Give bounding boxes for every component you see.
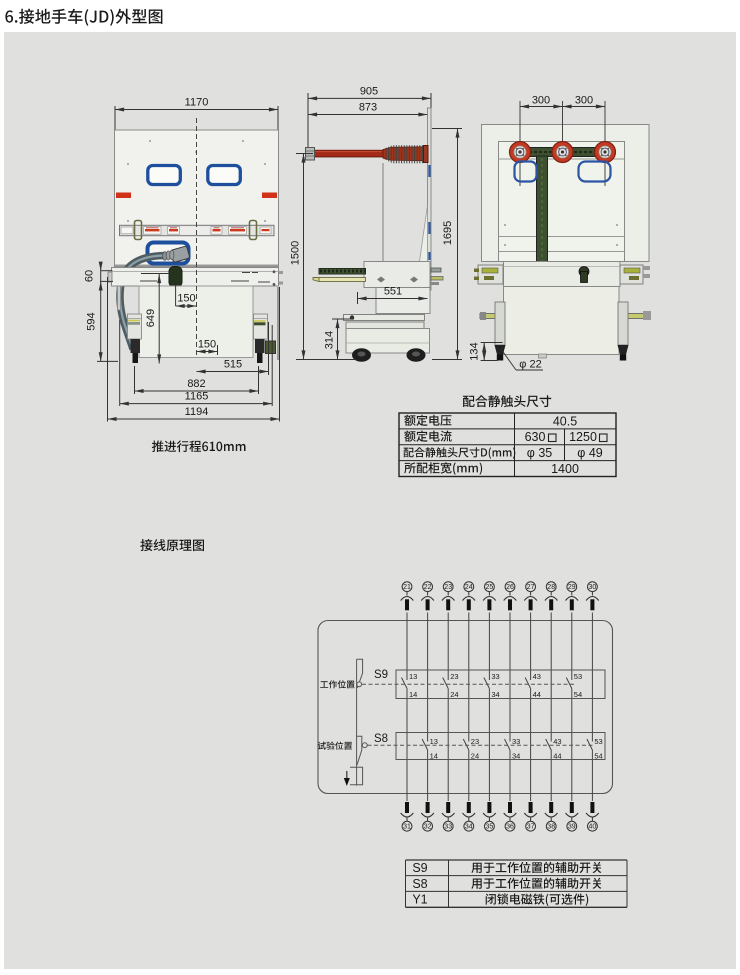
svg-text:13: 13 xyxy=(409,672,417,681)
svg-text:515: 515 xyxy=(224,359,242,371)
svg-text:53: 53 xyxy=(594,737,602,746)
svg-text:30: 30 xyxy=(589,584,597,591)
svg-text:1400: 1400 xyxy=(551,462,579,476)
svg-text:150: 150 xyxy=(177,293,195,305)
svg-text:33: 33 xyxy=(444,824,452,831)
svg-text:S9: S9 xyxy=(412,861,427,875)
svg-text:27: 27 xyxy=(527,584,535,591)
svg-text:882: 882 xyxy=(187,378,205,390)
svg-text:34: 34 xyxy=(491,690,499,699)
svg-text:44: 44 xyxy=(533,690,541,699)
svg-text:594: 594 xyxy=(86,312,98,330)
svg-text:S9: S9 xyxy=(374,669,388,681)
svg-text:150: 150 xyxy=(198,339,216,351)
svg-text:23: 23 xyxy=(450,672,458,681)
svg-text:14: 14 xyxy=(430,752,438,761)
svg-text:873: 873 xyxy=(359,102,377,114)
svg-text:26: 26 xyxy=(506,584,514,591)
svg-text:33: 33 xyxy=(491,672,499,681)
svg-text:23: 23 xyxy=(471,737,479,746)
svg-text:1194: 1194 xyxy=(185,406,209,418)
svg-text:38: 38 xyxy=(547,824,555,831)
svg-text:60: 60 xyxy=(84,270,96,282)
svg-text:29: 29 xyxy=(568,584,576,591)
svg-text:43: 43 xyxy=(553,737,561,746)
svg-text:S8: S8 xyxy=(412,877,427,891)
svg-text:φ 22: φ 22 xyxy=(519,358,541,370)
svg-text:314: 314 xyxy=(324,331,336,349)
svg-text:39: 39 xyxy=(568,824,576,831)
svg-text:649: 649 xyxy=(145,309,157,327)
svg-text:1500: 1500 xyxy=(290,241,302,265)
svg-text:1250: 1250 xyxy=(569,430,597,444)
svg-text:14: 14 xyxy=(409,690,417,699)
svg-text:43: 43 xyxy=(533,672,541,681)
svg-text:24: 24 xyxy=(465,584,473,591)
svg-text:35: 35 xyxy=(486,824,494,831)
svg-text:24: 24 xyxy=(450,690,458,699)
svg-text:1170: 1170 xyxy=(185,97,209,109)
svg-text:36: 36 xyxy=(506,824,514,831)
svg-text:905: 905 xyxy=(360,86,378,98)
svg-text:54: 54 xyxy=(574,690,582,699)
svg-text:S8: S8 xyxy=(374,733,388,745)
svg-text:24: 24 xyxy=(471,752,479,761)
svg-text:33: 33 xyxy=(512,737,520,746)
svg-text:21: 21 xyxy=(403,584,411,591)
svg-text:φ 49: φ 49 xyxy=(577,446,603,460)
svg-text:134: 134 xyxy=(469,342,481,360)
svg-text:23: 23 xyxy=(444,584,452,591)
svg-text:22: 22 xyxy=(424,584,432,591)
svg-text:13: 13 xyxy=(430,737,438,746)
svg-text:54: 54 xyxy=(594,752,602,761)
svg-text:551: 551 xyxy=(384,286,402,298)
svg-text:300: 300 xyxy=(532,94,550,106)
svg-text:40.5: 40.5 xyxy=(553,414,577,428)
svg-text:630: 630 xyxy=(525,430,546,444)
svg-text:1695: 1695 xyxy=(442,221,454,245)
svg-text:40: 40 xyxy=(589,824,597,831)
svg-text:32: 32 xyxy=(424,824,432,831)
svg-text:31: 31 xyxy=(403,824,411,831)
svg-text:37: 37 xyxy=(527,824,535,831)
svg-text:25: 25 xyxy=(486,584,494,591)
svg-text:Y1: Y1 xyxy=(412,893,427,907)
svg-text:1165: 1165 xyxy=(185,391,209,403)
svg-text:φ 35: φ 35 xyxy=(527,446,553,460)
svg-text:34: 34 xyxy=(465,824,473,831)
svg-text:44: 44 xyxy=(553,752,561,761)
svg-text:34: 34 xyxy=(512,752,520,761)
svg-text:53: 53 xyxy=(574,672,582,681)
svg-text:28: 28 xyxy=(547,584,555,591)
svg-text:300: 300 xyxy=(575,94,593,106)
